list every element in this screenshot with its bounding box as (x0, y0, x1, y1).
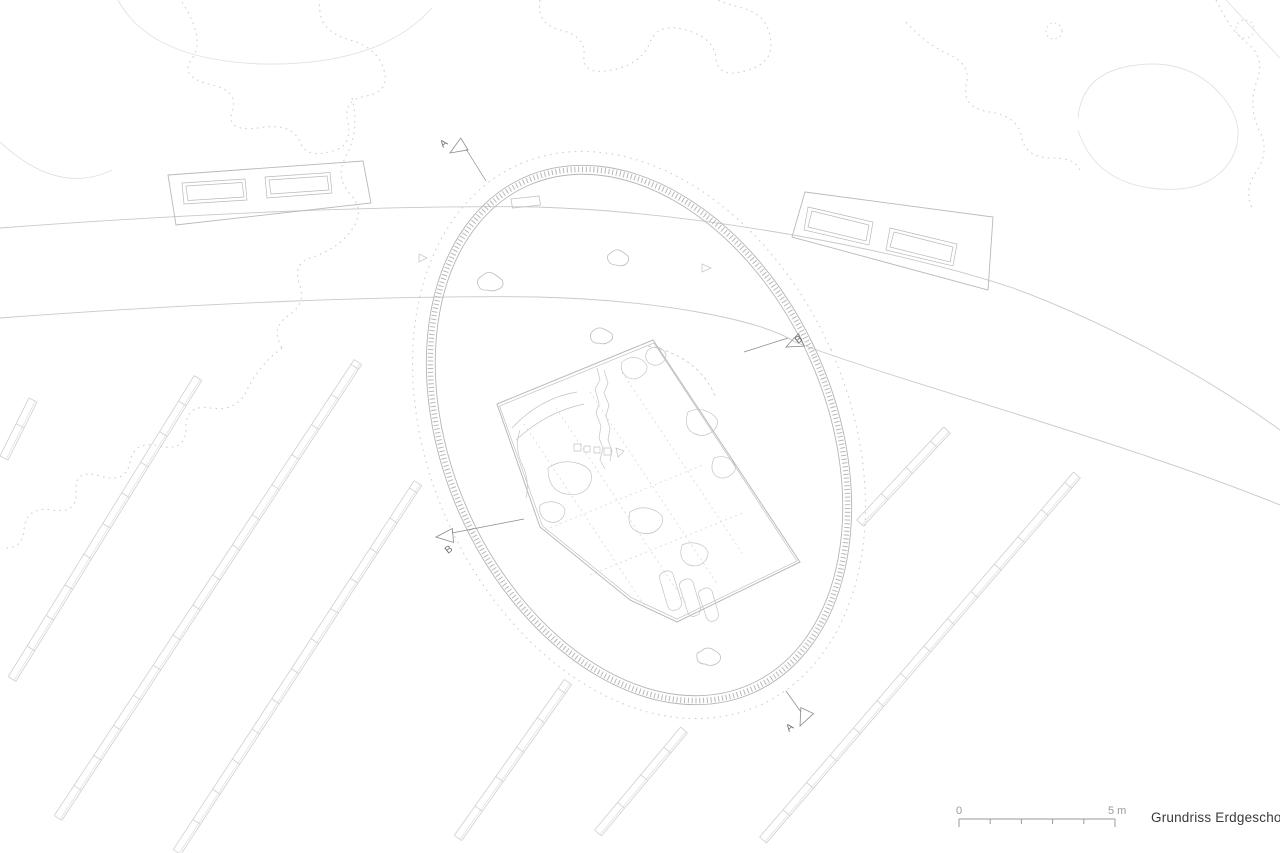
trellis-row-inner-line (6, 401, 35, 459)
trellis-row (595, 727, 688, 836)
planting-figure (697, 648, 721, 666)
interior-stone-detail (681, 543, 708, 566)
planter-rectangle (808, 211, 869, 241)
interior-stone-detail (629, 508, 663, 534)
site-plan-canvas: ABBA 0 5 m (0, 0, 1280, 853)
section-marker-triangle (450, 138, 468, 153)
scale-bar: 0 5 m (956, 805, 1126, 827)
pavilion-outline (792, 192, 993, 290)
interior-stone-detail (512, 392, 577, 428)
section-line-stub (744, 338, 788, 352)
planter-rectangle (186, 183, 244, 201)
planting-figure (607, 250, 628, 266)
section-line-stub (786, 691, 801, 712)
interior-dotted-gridline (590, 392, 718, 585)
section-line-stub (466, 149, 486, 181)
vegetation-dotted-boundary (277, 98, 358, 348)
road-direction-triangle (419, 254, 427, 262)
vegetation-dotted-boundary (1216, 0, 1264, 208)
ellipse-dotted-offset (327, 79, 951, 791)
trellis-row-inner-line (179, 484, 420, 853)
tree-canopy-outline (118, 0, 432, 64)
interior-stone-detail (621, 357, 647, 378)
tree-canopy-outline (1226, 0, 1280, 58)
road-edge-lower (0, 297, 1280, 505)
interior-stone-detail (548, 462, 592, 495)
trellis-row (454, 679, 571, 840)
interior-stone-detail (699, 588, 719, 622)
interior-stone-detail (595, 368, 605, 469)
section-marker-letter: B (443, 543, 455, 556)
vegetation-dotted-boundary (906, 22, 1080, 172)
trellis-row-inner-line (460, 683, 570, 839)
interior-stone-detail (616, 448, 624, 457)
trellis-row (857, 427, 951, 526)
scale-bar-start-label: 0 (956, 805, 962, 817)
interior-stone-detail (660, 571, 682, 611)
trellis-row (173, 481, 422, 853)
trellis-row (760, 472, 1081, 843)
interior-stone-detail (574, 444, 611, 455)
scale-bar-end-label: 5 m (1108, 805, 1126, 817)
planting-figure (590, 328, 612, 344)
trellis-row-inner-line (600, 732, 686, 835)
planting-figure (478, 272, 504, 290)
bench-rectangle (511, 196, 541, 208)
trellis-row-inner-line (765, 477, 1079, 842)
planter-rectangle (269, 176, 329, 194)
interior-dotted-gridline (556, 408, 686, 604)
scale-bar-ticks (959, 819, 1115, 827)
tree-canopy-outline (1078, 64, 1238, 189)
ellipse-outer-wall (345, 98, 933, 773)
trellis-row-inner-line (862, 432, 949, 525)
trellis-row (0, 398, 37, 460)
drawing-title: Grundriss Erdgeschoss (1151, 810, 1280, 825)
road-direction-triangle (702, 264, 711, 272)
section-marker-triangle (800, 708, 814, 726)
ellipse-hatch-band (351, 103, 928, 767)
shrub-dotted-circle (1046, 23, 1062, 39)
trellis-row-inner-line (60, 363, 360, 819)
vegetation-dotted-boundary (539, 0, 771, 73)
trellis-row (54, 360, 362, 821)
interior-dotted-gridline (545, 464, 705, 530)
floor-plan-sheet: ABBA 0 5 m Grundriss Erdgeschoss (0, 0, 1280, 853)
tree-canopy-outline (0, 142, 112, 178)
section-marker-triangle (436, 529, 454, 543)
trellis-row-inner-line (14, 379, 200, 680)
interior-stone-detail (540, 502, 565, 523)
vegetation-dotted-boundary (2, 348, 282, 548)
section-marker-letter: A (784, 721, 796, 734)
vegetation-dotted-boundary (182, 0, 385, 154)
interior-stone-detail (516, 404, 584, 440)
interior-dashed-arc (648, 346, 716, 398)
interior-stone-detail (680, 579, 701, 617)
planter-rectangle (886, 228, 957, 266)
interior-dotted-gridline (622, 372, 742, 553)
planter-rectangle (890, 232, 953, 262)
section-marker-letter: A (438, 137, 450, 150)
main-building-outline (497, 340, 800, 622)
interior-dotted-gridline (590, 512, 745, 575)
